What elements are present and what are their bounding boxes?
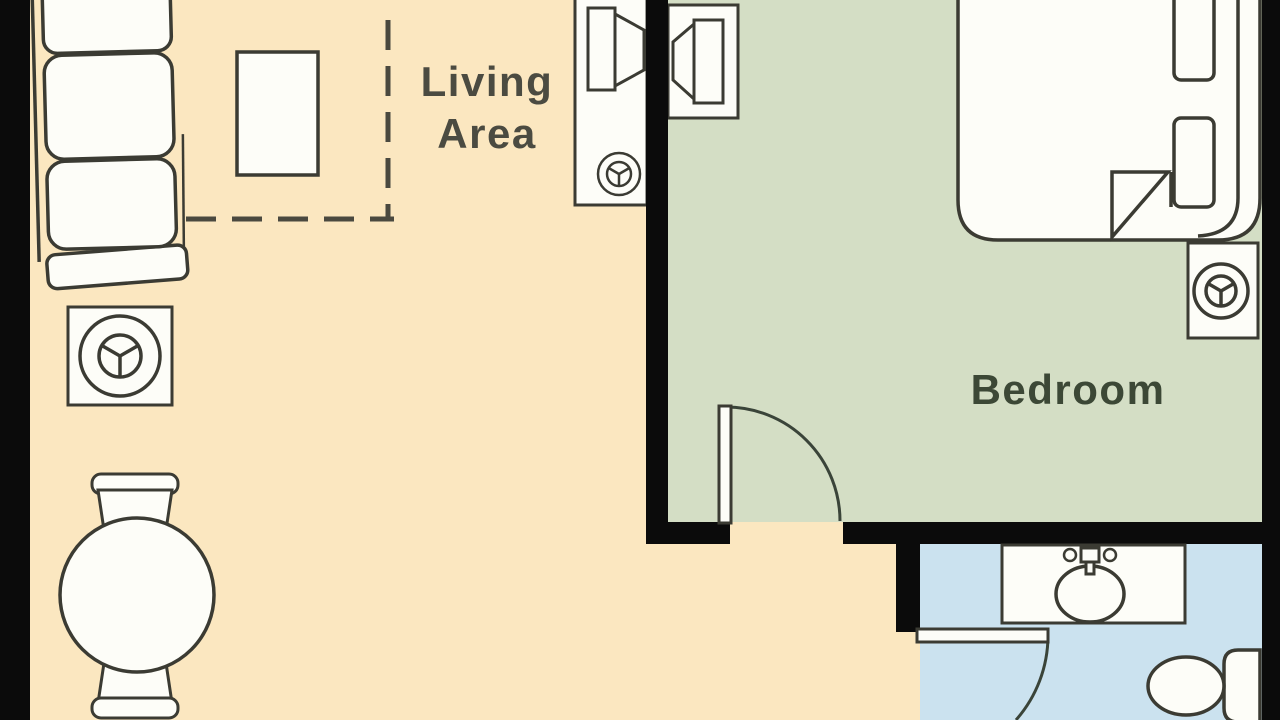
sofa-cushion-3 [47, 158, 177, 249]
tv-console-living [575, 0, 647, 205]
toilet [1148, 650, 1260, 720]
sofa-cushion-2 [44, 52, 175, 159]
nightstand [1188, 243, 1258, 338]
bedroom-door-leaf [719, 406, 731, 523]
sofa-cushion-1 [42, 0, 172, 54]
floor-plan-drawing: Living Area Bedroom [0, 0, 1280, 720]
wall-right [1262, 0, 1280, 720]
bathroom-door-leaf [917, 629, 1048, 642]
dining-table [60, 518, 214, 672]
bed-pillow-1 [1174, 0, 1214, 80]
wall-living-bedroom-divider [646, 0, 668, 544]
toilet-tank [1224, 650, 1260, 720]
chair-back [92, 698, 178, 718]
bed [958, 0, 1260, 240]
sofa [32, 0, 189, 290]
tv-console-bedroom [668, 5, 738, 118]
bed-pillow-2 [1174, 118, 1214, 207]
wall-bedroom-bottom-left [646, 522, 730, 544]
floor-plan: Living Area Bedroom [0, 0, 1280, 720]
coffee-table [237, 52, 318, 175]
wall-left [0, 0, 30, 720]
toilet-bowl [1148, 657, 1224, 715]
bedroom-label: Bedroom [971, 366, 1166, 413]
bathroom-vanity [1002, 545, 1185, 623]
living-area-label-line2: Area [437, 110, 536, 157]
wall-bedroom-bottom-right [843, 522, 1280, 544]
wall-bathroom-left [896, 544, 920, 632]
living-area-label-line1: Living [421, 58, 554, 105]
side-table [68, 307, 172, 405]
